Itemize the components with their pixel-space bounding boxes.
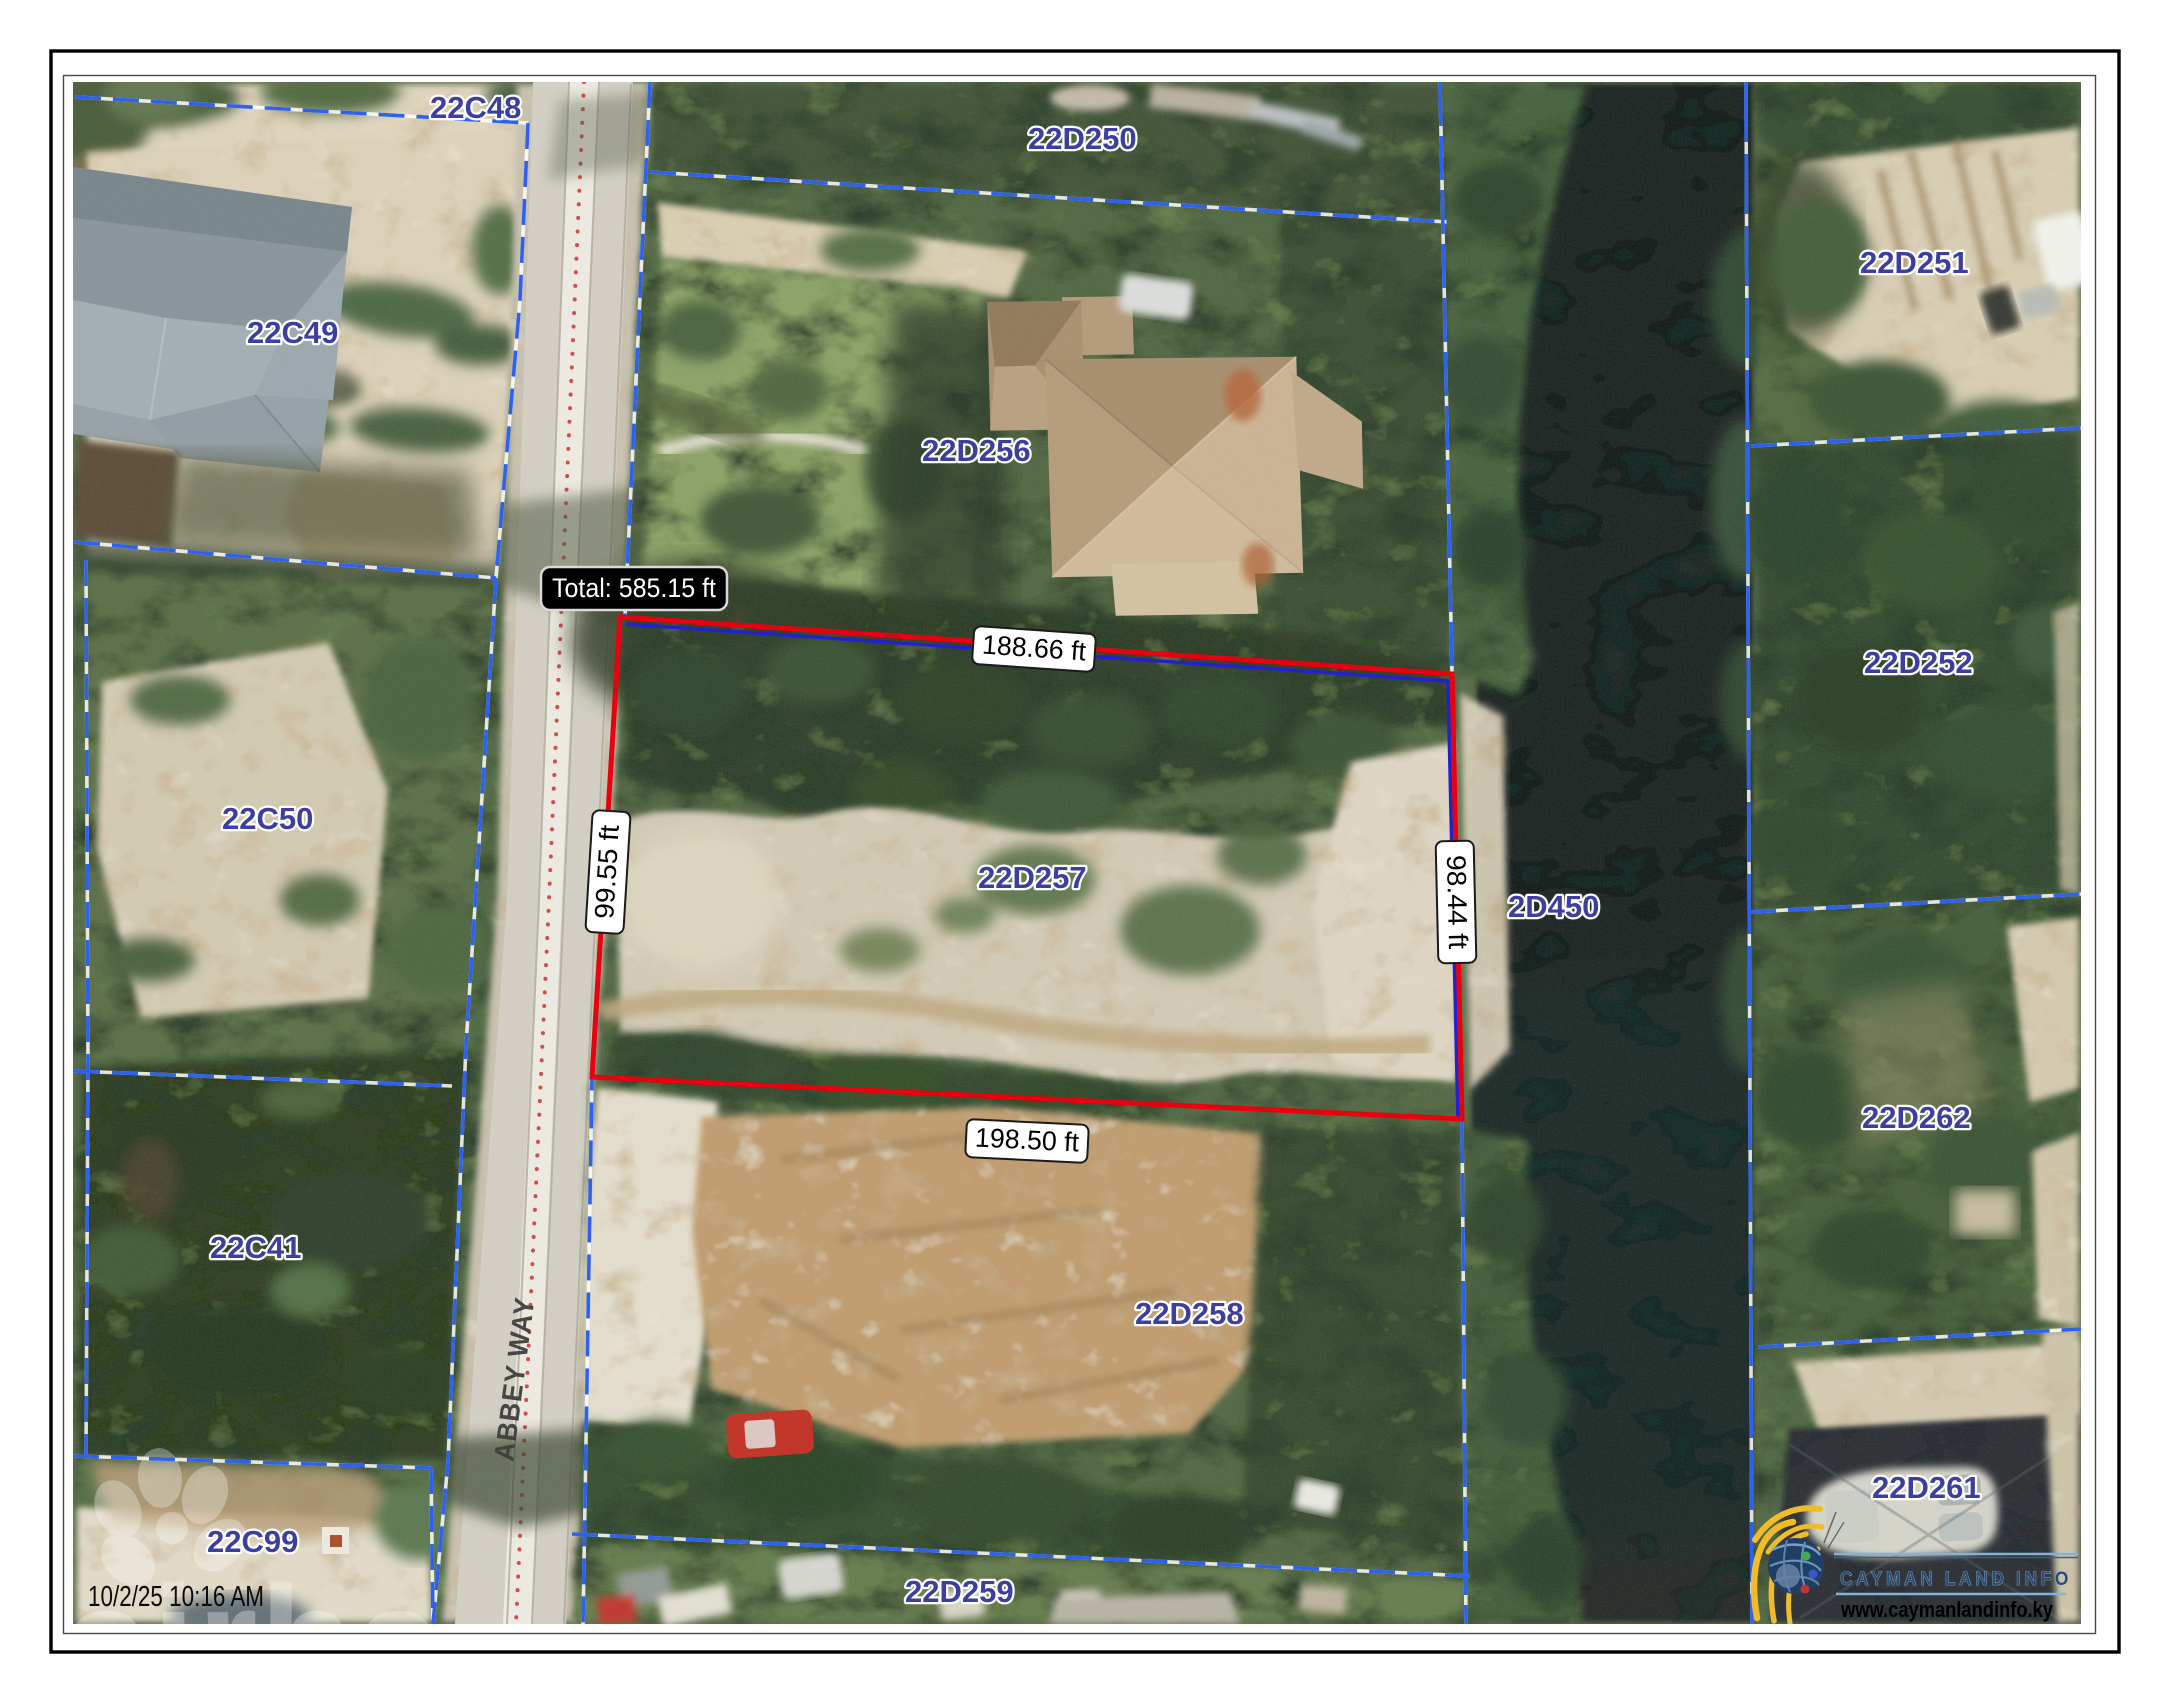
svg-text:98.44 ft: 98.44 ft [1441, 855, 1473, 950]
svg-text:22D250: 22D250 [1028, 121, 1137, 156]
svg-text:www.caymanlandinfo.ky: www.caymanlandinfo.ky [1840, 1597, 2053, 1622]
svg-text:22D259: 22D259 [905, 1574, 1014, 1609]
svg-text:2D450: 2D450 [1508, 889, 1599, 924]
svg-text:22D251: 22D251 [1860, 245, 1969, 280]
svg-text:22D261: 22D261 [1872, 1470, 1981, 1505]
svg-text:99.55 ft: 99.55 ft [589, 824, 625, 920]
svg-text:198.50 ft: 198.50 ft [974, 1122, 1080, 1157]
svg-text:22C48: 22C48 [430, 90, 521, 125]
svg-text:22D256: 22D256 [922, 433, 1031, 468]
svg-text:10/2/25 10:16 AM: 10/2/25 10:16 AM [88, 1581, 264, 1613]
svg-text:22C99: 22C99 [207, 1524, 298, 1559]
svg-text:22C49: 22C49 [247, 315, 338, 350]
svg-text:22D257: 22D257 [978, 860, 1087, 895]
svg-text:22D258: 22D258 [1135, 1296, 1244, 1331]
svg-text:Total: 585.15 ft: Total: 585.15 ft [552, 573, 716, 603]
svg-text:22C41: 22C41 [210, 1230, 301, 1265]
svg-text:22D262: 22D262 [1862, 1100, 1971, 1135]
svg-text:22D252: 22D252 [1864, 645, 1973, 680]
svg-text:22C50: 22C50 [222, 801, 313, 836]
svg-text:CAYMAN LAND INFO: CAYMAN LAND INFO [1840, 1569, 2072, 1590]
